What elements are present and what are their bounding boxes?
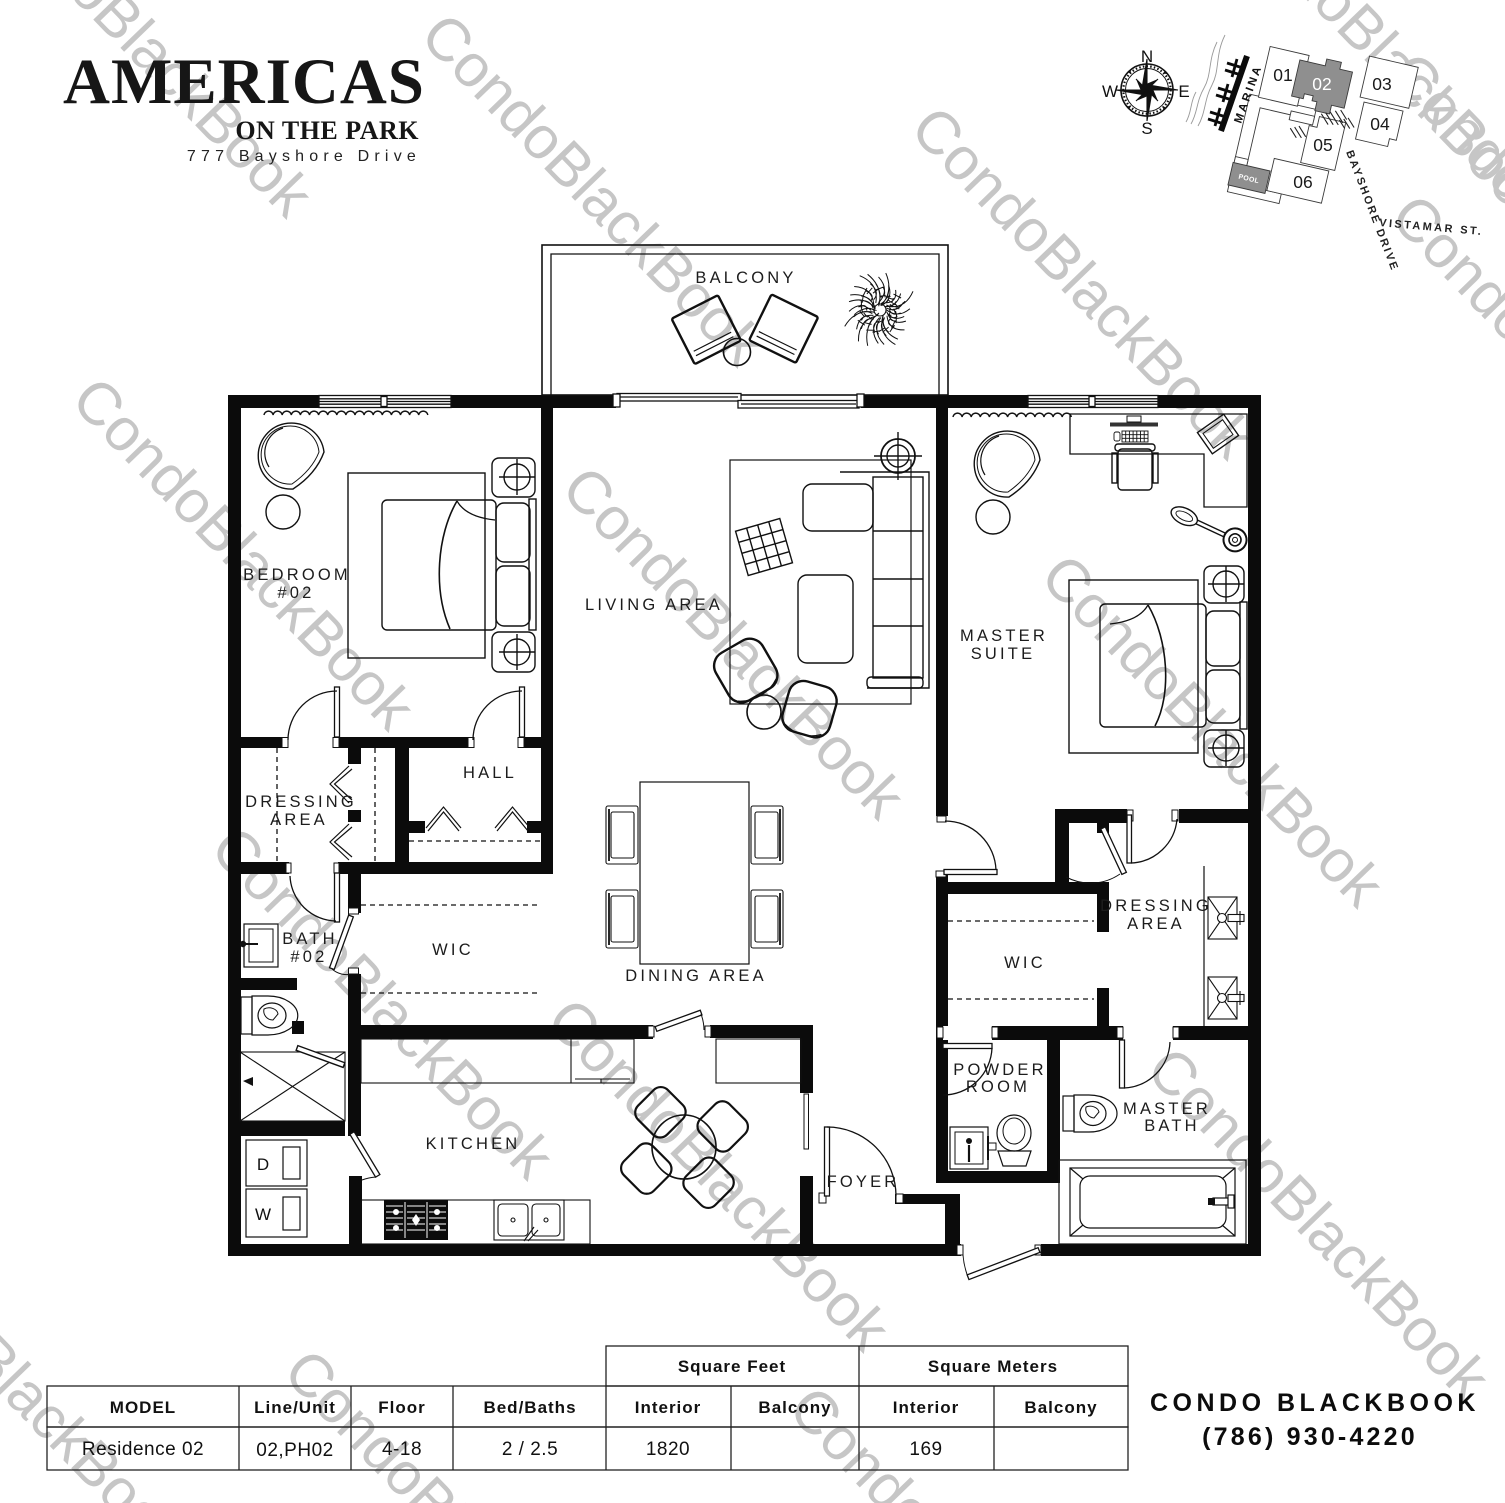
svg-text:CondoBlackBook: CondoBlackBook — [550, 453, 919, 831]
svg-text:W: W — [1102, 82, 1118, 101]
svg-text:ROOM: ROOM — [966, 1078, 1030, 1096]
svg-text:SUITE: SUITE — [971, 645, 1036, 663]
svg-text:KITCHEN: KITCHEN — [426, 1135, 521, 1153]
svg-text:04: 04 — [1370, 114, 1390, 134]
svg-text:HALL: HALL — [463, 764, 517, 782]
svg-text:WIC: WIC — [432, 941, 474, 959]
svg-text:Floor: Floor — [378, 1398, 426, 1417]
svg-text:777 Bayshore Drive: 777 Bayshore Drive — [187, 148, 421, 165]
svg-text:169: 169 — [909, 1439, 942, 1460]
svg-text:1820: 1820 — [646, 1439, 690, 1460]
svg-text:WIC: WIC — [1004, 954, 1046, 972]
svg-text:01: 01 — [1273, 65, 1292, 85]
svg-text:03: 03 — [1372, 74, 1391, 94]
svg-text:BALCONY: BALCONY — [695, 269, 796, 287]
svg-text:Balcony: Balcony — [758, 1398, 831, 1417]
svg-text:CondoBlackBook: CondoBlackBook — [272, 1336, 641, 1503]
svg-text:AMERICAS: AMERICAS — [63, 46, 425, 118]
svg-text:POWDER: POWDER — [953, 1061, 1046, 1079]
svg-text:MODEL: MODEL — [110, 1398, 176, 1417]
svg-text:CondoBlackBook: CondoBlackBook — [1379, 181, 1505, 559]
svg-text:W: W — [255, 1205, 271, 1224]
svg-text:BAYSHORE DRIVE: BAYSHORE DRIVE — [1343, 149, 1400, 274]
svg-text:LIVING AREA: LIVING AREA — [585, 596, 723, 614]
svg-text:#02: #02 — [277, 584, 314, 602]
svg-text:MASTER: MASTER — [960, 627, 1048, 645]
svg-text:Interior: Interior — [893, 1398, 960, 1417]
svg-text:DRESSING: DRESSING — [245, 793, 357, 811]
svg-text:AREA: AREA — [270, 811, 328, 829]
svg-text:06: 06 — [1293, 172, 1312, 192]
svg-text:DRESSING: DRESSING — [1100, 897, 1212, 915]
svg-text:CondoBlackBook: CondoBlackBook — [1135, 1034, 1504, 1412]
svg-text:BATH: BATH — [282, 930, 338, 948]
svg-text:N: N — [1141, 47, 1153, 66]
svg-text:CondoBlackBook: CondoBlackBook — [60, 364, 429, 742]
svg-text:CONDO BLACKBOOK: CONDO BLACKBOOK — [1150, 1389, 1480, 1417]
svg-text:FOYER: FOYER — [827, 1173, 900, 1191]
svg-text:DINING AREA: DINING AREA — [625, 967, 767, 985]
svg-text:4-18: 4-18 — [382, 1439, 422, 1460]
svg-text:2 / 2.5: 2 / 2.5 — [502, 1439, 558, 1460]
svg-text:ON THE PARK: ON THE PARK — [235, 116, 419, 145]
svg-text:Balcony: Balcony — [1024, 1398, 1097, 1417]
svg-text:Interior: Interior — [635, 1398, 702, 1417]
svg-text:AREA: AREA — [1127, 915, 1185, 933]
svg-text:E: E — [1178, 82, 1189, 101]
svg-text:Line/Unit: Line/Unit — [254, 1398, 336, 1417]
svg-text:MASTER: MASTER — [1123, 1100, 1211, 1118]
svg-text:05: 05 — [1313, 135, 1332, 155]
svg-text:Square Meters: Square Meters — [928, 1357, 1058, 1376]
svg-text:Residence 02: Residence 02 — [82, 1439, 204, 1460]
svg-text:BATH: BATH — [1144, 1117, 1200, 1135]
svg-text:Square Feet: Square Feet — [678, 1357, 786, 1376]
svg-text:02,PH02: 02,PH02 — [256, 1440, 333, 1461]
svg-text:CondoBlackBook: CondoBlackBook — [777, 1373, 1146, 1503]
svg-text:02: 02 — [1312, 74, 1331, 94]
svg-text:Bed/Baths: Bed/Baths — [483, 1398, 576, 1417]
svg-text:D: D — [257, 1155, 269, 1174]
svg-text:CondoBlackBook: CondoBlackBook — [409, 0, 778, 378]
svg-text:(786) 930-4220: (786) 930-4220 — [1202, 1423, 1418, 1451]
svg-text:BEDROOM: BEDROOM — [243, 566, 351, 584]
svg-text:S: S — [1141, 119, 1152, 138]
svg-text:#02: #02 — [290, 948, 327, 966]
